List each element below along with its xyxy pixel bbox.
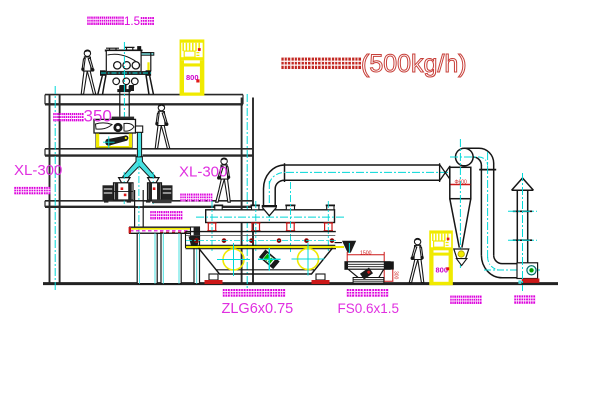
svg-text:XL-300: XL-300 xyxy=(179,164,227,181)
svg-text:(500kg/h): (500kg/h) xyxy=(361,50,467,78)
svg-text:ZLG6x0.75: ZLG6x0.75 xyxy=(222,301,294,317)
svg-text:300: 300 xyxy=(393,271,399,280)
svg-text:800: 800 xyxy=(436,266,449,275)
svg-text:350: 350 xyxy=(84,107,112,126)
svg-text:XL-300: XL-300 xyxy=(14,162,62,179)
svg-text:FS0.6x1.5: FS0.6x1.5 xyxy=(338,301,400,316)
svg-text:1500: 1500 xyxy=(360,250,372,256)
svg-text:1.5: 1.5 xyxy=(124,16,140,28)
